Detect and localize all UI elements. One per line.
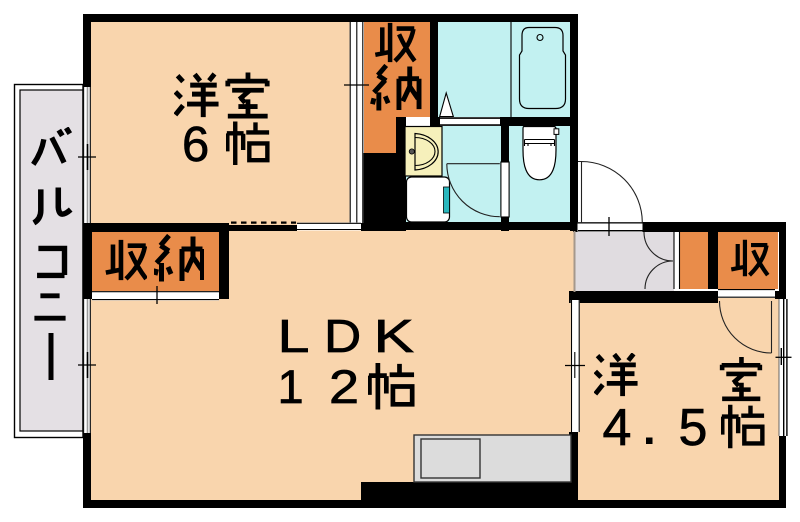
svg-text:K: K [374, 311, 415, 362]
svg-text:1: 1 [278, 360, 304, 413]
svg-text:D: D [324, 311, 361, 362]
svg-text:L: L [278, 311, 310, 362]
svg-text:2: 2 [329, 360, 359, 413]
svg-text:6: 6 [182, 118, 209, 172]
svg-text:5: 5 [679, 399, 708, 457]
svg-text:4: 4 [603, 399, 632, 457]
